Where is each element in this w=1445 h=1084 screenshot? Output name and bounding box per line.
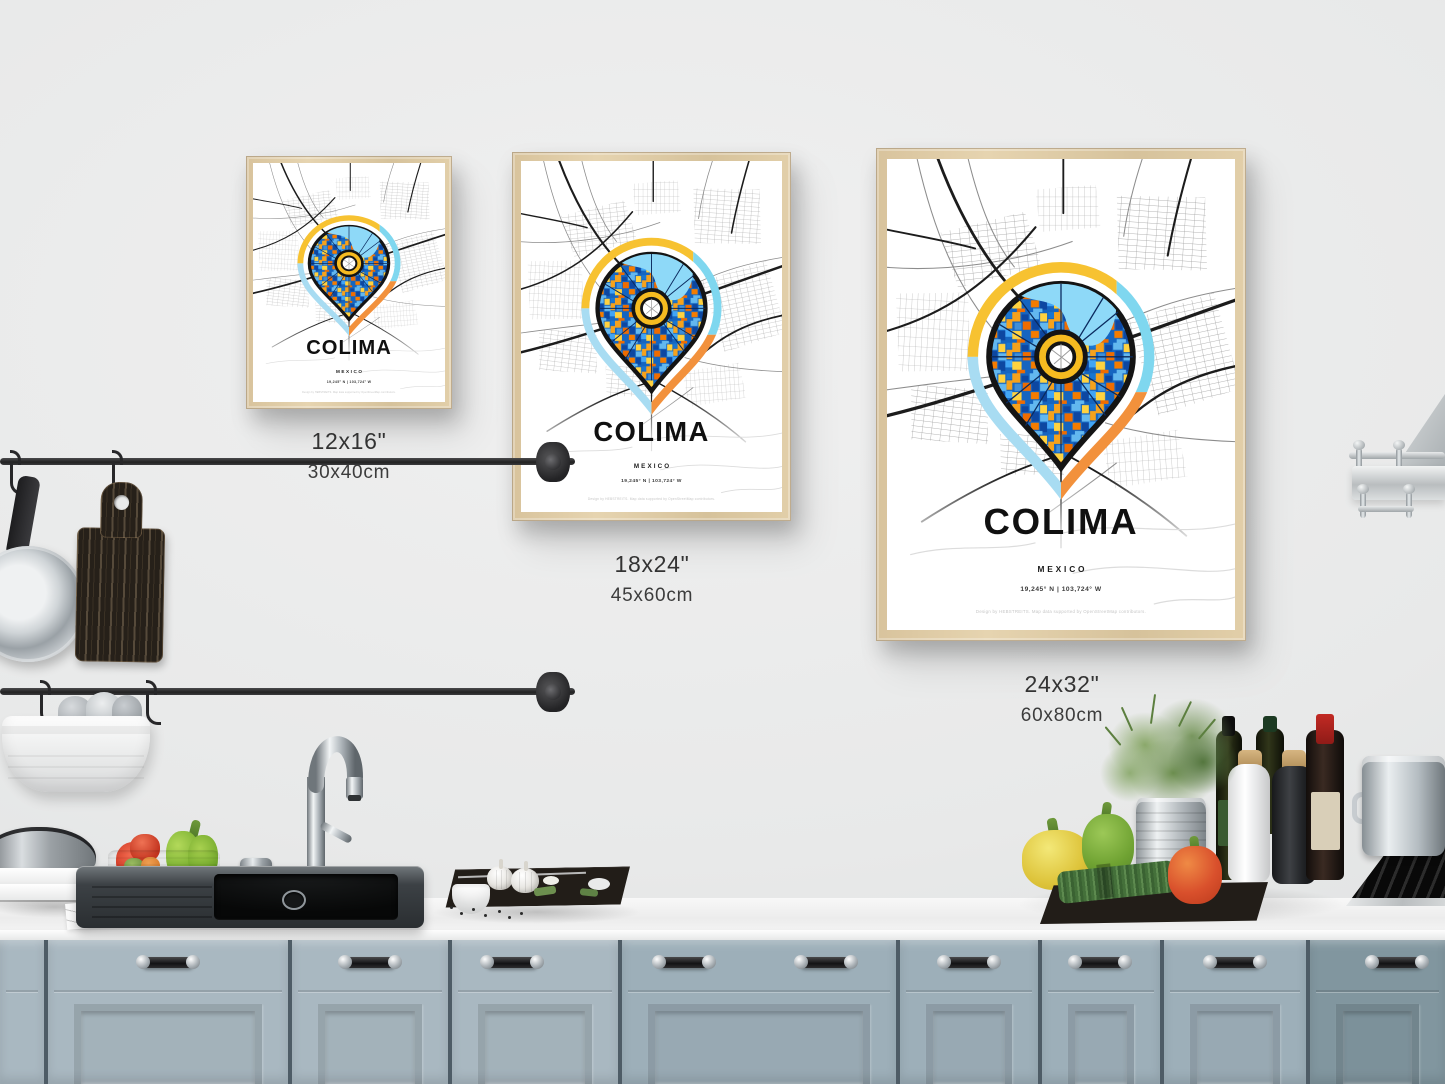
- door-panel: [478, 1004, 592, 1084]
- cabinet-door: [900, 940, 1038, 1084]
- poster-credit-line: Design by HEBSTREITS. Map data supported…: [521, 497, 782, 501]
- cabinet-handle: [486, 957, 538, 968]
- poster-credit-line: Design by HEBSTREITS. Map data supported…: [253, 391, 445, 394]
- door-panel: [1068, 1004, 1134, 1084]
- poster-large-map: [887, 159, 1235, 630]
- poster-credit-line: Design by HEBSTREITS. Map data supported…: [887, 609, 1235, 614]
- poster-large: COLIMA MEXICO 19,245° N | 103,724° W Des…: [876, 148, 1246, 641]
- door-panel: [926, 1004, 1012, 1084]
- cabinet-handle: [800, 957, 852, 968]
- hood-lower-post: [1360, 492, 1366, 518]
- poster-small-paper: COLIMA MEXICO 19,245° N | 103,724° W Des…: [253, 163, 445, 402]
- cabinet-door: [1164, 940, 1306, 1084]
- drainboard: [92, 878, 212, 918]
- poster-coordinates: 19,245° N | 103,724° W: [253, 380, 445, 384]
- door-panel: [74, 1004, 262, 1084]
- size-inches: 24x32": [962, 671, 1162, 698]
- size-label-medium: 18x24" 45x60cm: [552, 551, 752, 607]
- door-panel: [648, 1004, 870, 1084]
- poster-city-title: COLIMA: [253, 338, 445, 358]
- poster-small: COLIMA MEXICO 19,245° N | 103,724° W Des…: [246, 156, 452, 409]
- poster-country: MEXICO: [253, 369, 445, 374]
- red-bell-pepper: [1168, 846, 1222, 904]
- kitchen-scene: COLIMA MEXICO 19,245° N | 103,724° W Des…: [0, 0, 1445, 1084]
- cabinet-door: [292, 940, 448, 1084]
- poster-coordinates: 19,245° N | 103,724° W: [887, 586, 1235, 593]
- cabinet-drawer: [622, 940, 896, 1084]
- hanging-pan: [0, 546, 86, 662]
- size-label-small: 12x16" 30x40cm: [249, 428, 449, 484]
- door-panel: [318, 1004, 422, 1084]
- garlic-bulb: [487, 866, 513, 890]
- sink-basin: [214, 874, 398, 920]
- size-inches: 12x16": [249, 428, 449, 455]
- poster-small-map: [253, 163, 445, 402]
- door-panel: [1336, 1004, 1419, 1084]
- cabinet-run: [0, 940, 1445, 1084]
- rail-mount: [536, 442, 570, 482]
- cabinet-door: [1042, 940, 1160, 1084]
- cabinet-door: [48, 940, 288, 1084]
- poster-city-title: COLIMA: [887, 504, 1235, 541]
- faucet: [275, 685, 365, 885]
- hood-lower-rail: [1358, 506, 1414, 512]
- cabinet-handle: [142, 957, 194, 968]
- metal-bowl: [0, 827, 96, 871]
- poster-city-title: COLIMA: [521, 418, 782, 445]
- city-map-graphic: [887, 159, 1235, 630]
- cabinet-door: [0, 940, 44, 1084]
- cabinet-handle: [1371, 957, 1423, 968]
- board-hole: [588, 878, 610, 890]
- oil-bottle-cap: [1263, 716, 1277, 732]
- size-inches: 18x24": [552, 551, 752, 578]
- city-map-graphic: [253, 163, 445, 402]
- cabinet-door: [452, 940, 618, 1084]
- wall-rail-upper: [0, 458, 575, 465]
- cabinet-handle: [658, 957, 710, 968]
- door-panel: [1190, 1004, 1280, 1084]
- garlic-clove: [543, 876, 559, 885]
- cabinet-handle: [344, 957, 396, 968]
- rail-mount: [536, 672, 570, 712]
- hanging-cutting-board: [75, 527, 165, 663]
- cabinet-handle: [943, 957, 995, 968]
- poster-country: MEXICO: [887, 564, 1235, 574]
- cooking-pot: [1362, 756, 1445, 856]
- size-cm: 45x60cm: [552, 585, 752, 607]
- sink-drain: [282, 890, 306, 910]
- wine-label: [1311, 792, 1340, 850]
- kitchen-sink: [76, 866, 424, 928]
- wine-cap: [1316, 714, 1334, 744]
- cabinet-handle: [1074, 957, 1126, 968]
- cabinet-handle: [1209, 957, 1261, 968]
- utensil-bucket: [2, 716, 150, 792]
- hood-lower-post: [1406, 492, 1412, 518]
- poster-large-paper: COLIMA MEXICO 19,245° N | 103,724° W Des…: [887, 159, 1235, 630]
- size-cm: 30x40cm: [249, 462, 449, 484]
- salt-grinder: [1228, 764, 1270, 882]
- peppercorns: [450, 906, 453, 909]
- cabinet-door: [1310, 940, 1445, 1084]
